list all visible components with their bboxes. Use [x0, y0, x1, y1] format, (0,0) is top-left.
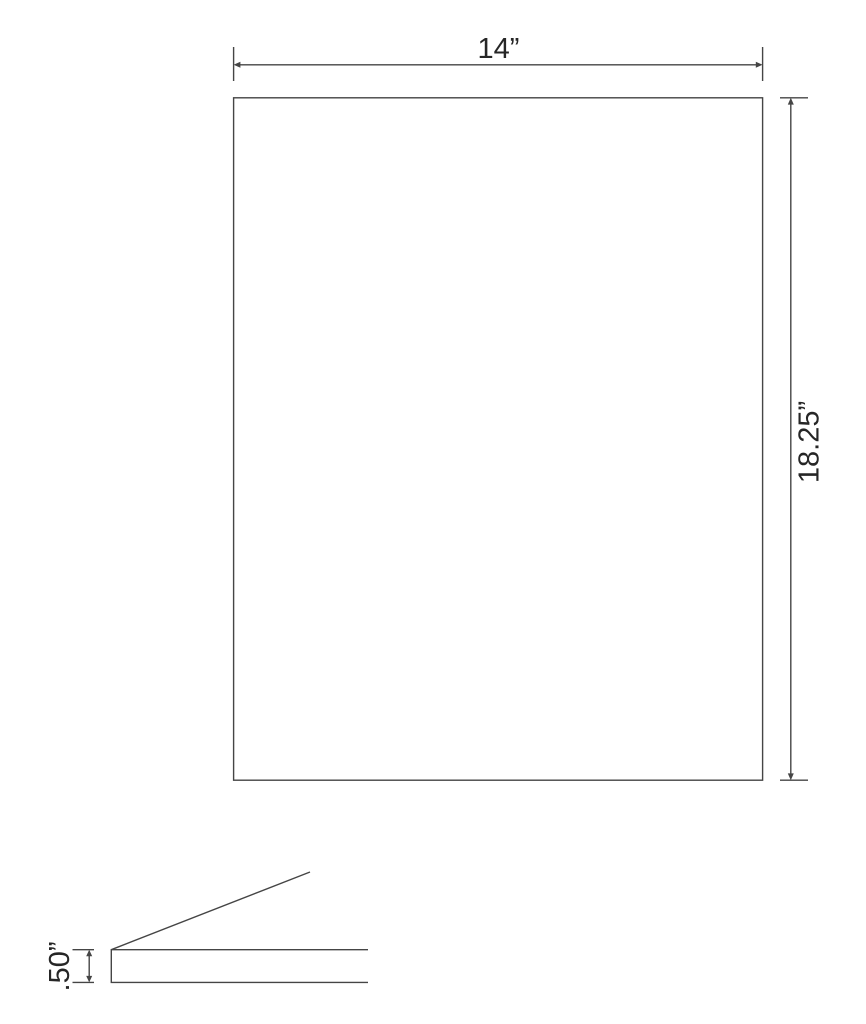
svg-text:.50”: .50”: [44, 942, 76, 992]
svg-text:18.25”: 18.25”: [794, 401, 826, 483]
svg-text:14”: 14”: [478, 33, 520, 65]
